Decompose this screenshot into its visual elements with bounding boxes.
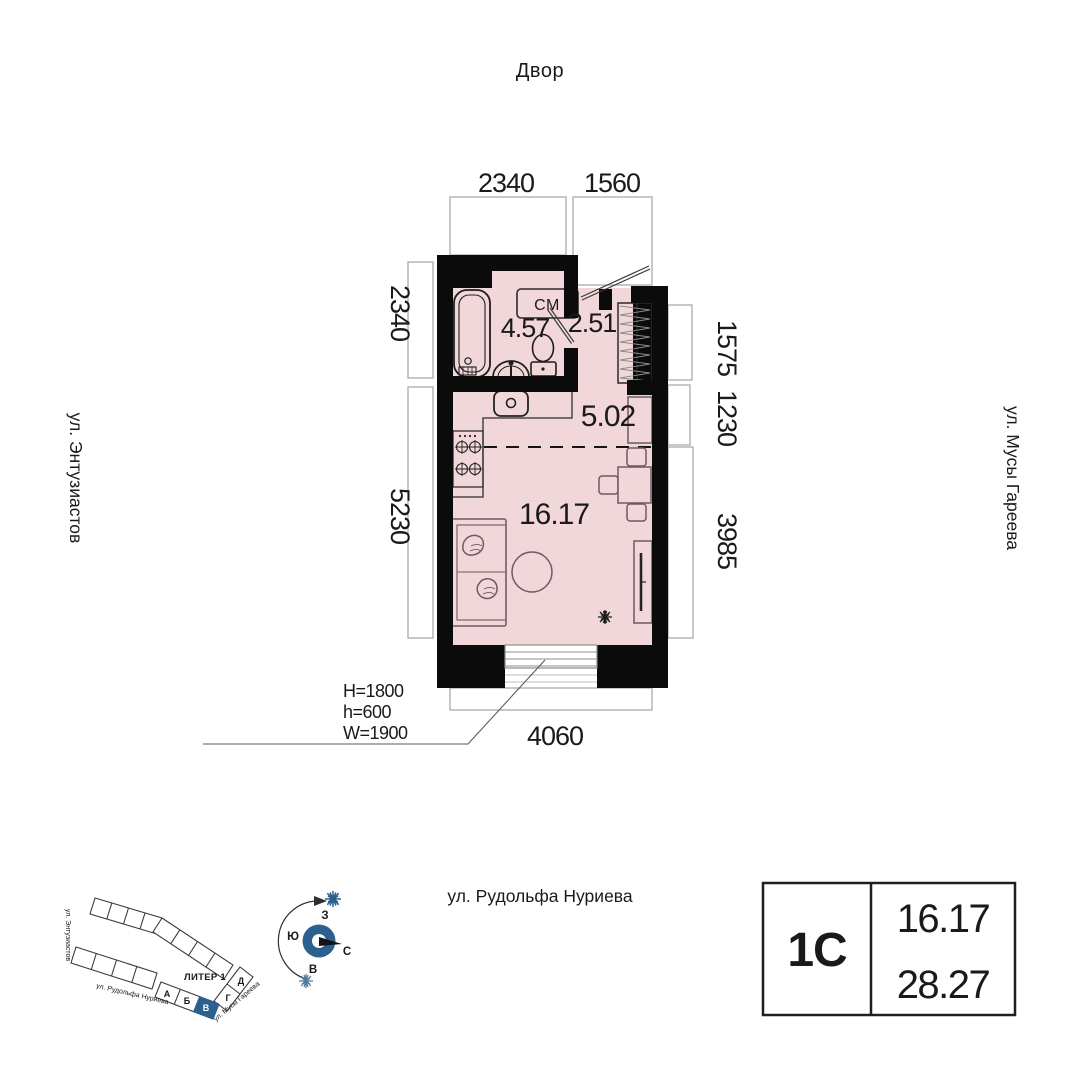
room-area-living: 16.17 <box>519 498 589 531</box>
courtyard-label: Двор <box>516 60 564 82</box>
dim-right-3: 3985 <box>712 513 742 569</box>
dining-chair-top <box>627 448 646 466</box>
dim-top-1: 2340 <box>478 168 534 198</box>
dim-top-2: 1560 <box>584 168 640 198</box>
kitchen-sink <box>494 391 528 416</box>
dim-box-top-left <box>450 197 566 255</box>
sink-tap <box>509 361 514 366</box>
bathtub <box>454 290 490 377</box>
site-liter-label: ЛИТЕР 1 <box>184 972 226 983</box>
dim-left-1: 2340 <box>385 285 415 341</box>
round-table <box>512 552 552 592</box>
room-area-kitchen: 5.02 <box>581 400 636 433</box>
wall-bottom-left <box>437 645 505 688</box>
info-box: 1С 16.17 28.27 <box>763 883 1015 1015</box>
window-spec-H: H=1800 <box>343 681 404 701</box>
wall-bottom-right <box>597 645 668 688</box>
unit-type-label: 1С <box>787 924 847 977</box>
room-area-bathroom: 4.57 <box>501 313 550 343</box>
compass-north: С <box>343 946 351 958</box>
plant-icon <box>598 610 612 624</box>
sun-icon-morning <box>299 974 313 988</box>
dim-bottom: 4060 <box>527 721 583 751</box>
window-specs: H=1800 h=600 W=1900 <box>343 681 408 743</box>
tv-stand <box>634 541 652 623</box>
dining-table <box>618 467 651 503</box>
living-area-value: 16.17 <box>897 897 990 941</box>
site-block-b: Б <box>184 996 191 1006</box>
dining-chair-left <box>599 476 618 494</box>
dim-box-top-right <box>573 197 652 285</box>
compass: З Ю С В <box>278 891 351 988</box>
street-label-bottom: ул. Рудольфа Нуриева <box>447 886 633 906</box>
dim-right-1: 1575 <box>712 320 742 376</box>
washing-machine-label: СМ <box>534 297 560 314</box>
window-spec-W: W=1900 <box>343 723 408 743</box>
wall-top-left-step <box>437 255 492 288</box>
wall-door-jamb <box>599 289 612 310</box>
wall-right <box>652 286 668 688</box>
wall-bath-bottom <box>437 376 564 392</box>
total-area-value: 28.27 <box>897 963 990 1007</box>
site-block-v: В <box>203 1003 210 1013</box>
dim-box-right-lower <box>668 447 693 638</box>
compass-east: В <box>309 964 317 976</box>
wall-below-wardrobe <box>627 380 652 395</box>
sun-icon-evening <box>325 891 341 907</box>
compass-west: З <box>321 910 328 922</box>
site-plan: А Б В Г Д ЛИТЕР 1 ул. Энтузиастов ул. Ру… <box>64 898 261 1023</box>
floorplan-canvas: Двор 2340 1560 2340 5230 1575 1230 3985 … <box>0 0 1080 1080</box>
dining-chair-bottom <box>627 504 646 521</box>
floorplan-page: Двор 2340 1560 2340 5230 1575 1230 3985 … <box>0 0 1080 1080</box>
dim-box-right-middle <box>668 385 690 445</box>
site-street-enthusiasts: ул. Энтузиастов <box>64 909 71 962</box>
dim-left-2: 5230 <box>385 488 415 544</box>
arc-arrowhead <box>314 896 327 906</box>
street-label-right: ул. Мусы Гареева <box>1003 406 1023 550</box>
window <box>505 645 597 682</box>
wall-bath-divider-lower <box>564 348 578 392</box>
street-label-left: ул. Энтузиастов <box>66 413 86 544</box>
compass-south: Ю <box>287 931 299 943</box>
dim-right-2: 1230 <box>712 390 742 446</box>
wall-left <box>437 255 453 688</box>
sofa <box>451 519 506 626</box>
site-block-d: Д <box>238 976 245 986</box>
room-area-hallway: 2.51 <box>568 308 617 338</box>
window-spec-h: h=600 <box>343 702 392 722</box>
dim-box-right-upper <box>668 305 692 380</box>
dim-box-bottom <box>450 688 652 710</box>
site-block-g: Г <box>225 993 230 1003</box>
